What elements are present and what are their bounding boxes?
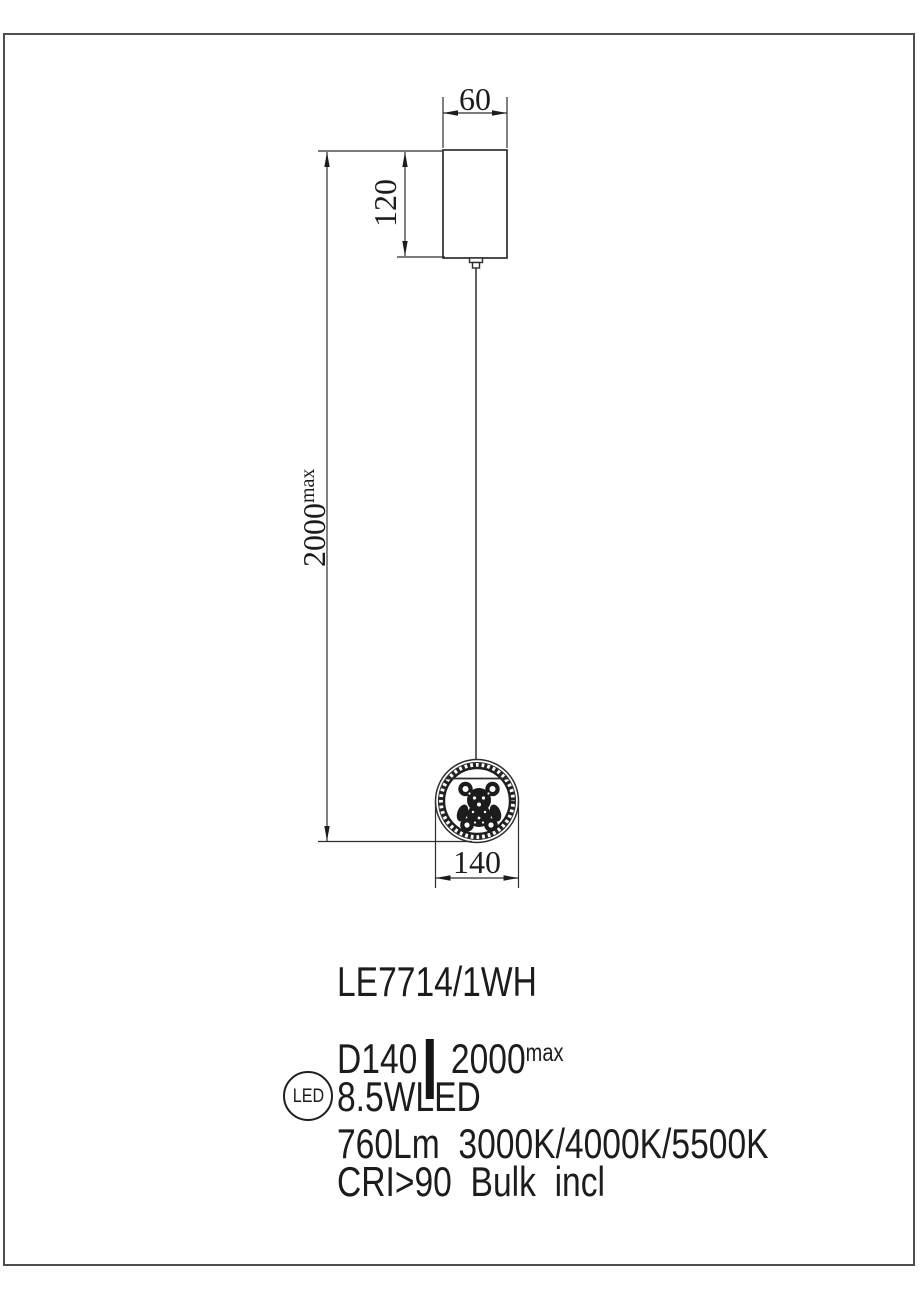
arrowhead bbox=[402, 152, 407, 167]
power-spec: 8.5WLED bbox=[337, 1076, 481, 1118]
drop-spec-sup: max bbox=[526, 1041, 564, 1066]
arrowhead bbox=[324, 826, 329, 841]
led-badge-icon: LED bbox=[283, 1071, 333, 1121]
model-number: LE7714/1WH bbox=[337, 961, 537, 1003]
canopy bbox=[443, 150, 507, 268]
size-spec-row: D140 2000 max bbox=[337, 1013, 620, 1080]
cri-bulb-spec: CRI>90 Bulk incl bbox=[337, 1161, 605, 1203]
dim-drop-value: 2000 bbox=[296, 503, 332, 567]
teddy-bear bbox=[455, 782, 504, 832]
arrowhead bbox=[443, 110, 458, 115]
pendant bbox=[436, 760, 519, 843]
canopy-body bbox=[443, 150, 507, 258]
dim-canopy-height: 120 bbox=[318, 151, 445, 257]
cord-grip-bottom bbox=[473, 263, 480, 269]
arrowhead bbox=[402, 241, 407, 256]
arrowhead bbox=[492, 110, 507, 115]
bear-foot-left-pad bbox=[464, 822, 469, 827]
dim-label-pendant-diameter: 140 bbox=[453, 844, 501, 880]
dim-label-canopy-height: 120 bbox=[367, 179, 403, 227]
bear-ear-left-center bbox=[463, 786, 469, 792]
arrowhead bbox=[504, 875, 519, 880]
led-badge-label: LED bbox=[292, 1087, 323, 1106]
dim-label-canopy-width: 60 bbox=[459, 81, 491, 117]
bear-ear-right-center bbox=[490, 786, 496, 792]
dim-canopy-width: 60 bbox=[443, 81, 507, 148]
arrowhead bbox=[324, 152, 329, 167]
dim-drop-sup: max bbox=[297, 469, 319, 503]
drawing-sheet: 60 120 2000max bbox=[0, 0, 919, 1300]
bear-foot-right-pad bbox=[488, 822, 493, 827]
arrowhead bbox=[436, 875, 451, 880]
